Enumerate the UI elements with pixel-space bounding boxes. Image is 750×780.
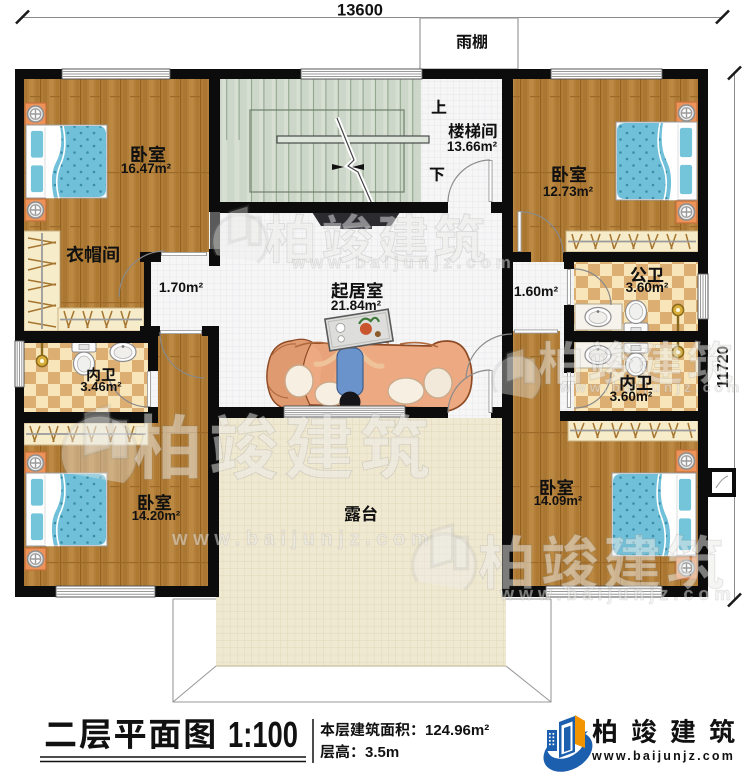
svg-text:3.60m²: 3.60m² bbox=[626, 280, 669, 295]
svg-text:www.baijunjz.com: www.baijunjz.com bbox=[171, 528, 434, 550]
svg-text:1.70m²: 1.70m² bbox=[159, 279, 204, 295]
svg-text:12.73m²: 12.73m² bbox=[543, 184, 594, 199]
svg-text:16.47m²: 16.47m² bbox=[121, 161, 172, 176]
svg-text:www.baijunjz.com: www.baijunjz.com bbox=[591, 749, 735, 763]
svg-text:14.20m²: 14.20m² bbox=[132, 508, 181, 523]
svg-text:124.96m²: 124.96m² bbox=[425, 722, 489, 739]
svg-text:3.60m²: 3.60m² bbox=[610, 389, 653, 404]
svg-text:www.baijunjz.com: www.baijunjz.com bbox=[499, 584, 735, 604]
svg-text:1:100: 1:100 bbox=[228, 714, 298, 755]
svg-text:14.09m²: 14.09m² bbox=[534, 493, 583, 508]
svg-text:21.84m²: 21.84m² bbox=[331, 298, 382, 313]
svg-text:1.60m²: 1.60m² bbox=[514, 283, 559, 299]
svg-text:13.66m²: 13.66m² bbox=[447, 139, 498, 154]
svg-text:13600: 13600 bbox=[337, 2, 383, 20]
svg-text:3.46m²: 3.46m² bbox=[80, 379, 122, 394]
svg-text:3.5m: 3.5m bbox=[365, 744, 399, 761]
svg-text:www.baijunjz.com: www.baijunjz.com bbox=[291, 253, 516, 272]
